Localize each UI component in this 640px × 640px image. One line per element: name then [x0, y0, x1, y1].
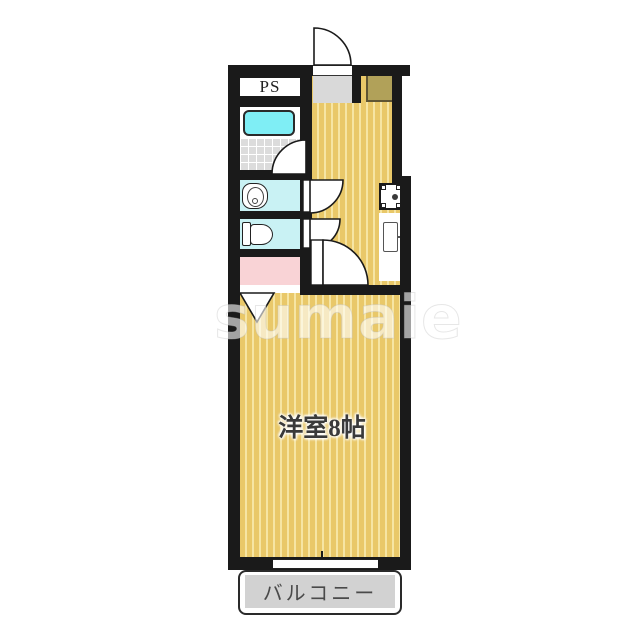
washroom-door-arc [310, 180, 343, 213]
closet-door-triangle [240, 293, 274, 322]
mainroom-door-arc [323, 240, 368, 285]
bathroom-door-arc [272, 140, 306, 174]
entrance-door-arc [314, 28, 351, 65]
mainroom-door-leaf [311, 240, 323, 285]
floorplan-canvas: PS バルコニー 洋室8帖 sumaie [0, 0, 640, 640]
door-symbols-layer [0, 0, 640, 640]
